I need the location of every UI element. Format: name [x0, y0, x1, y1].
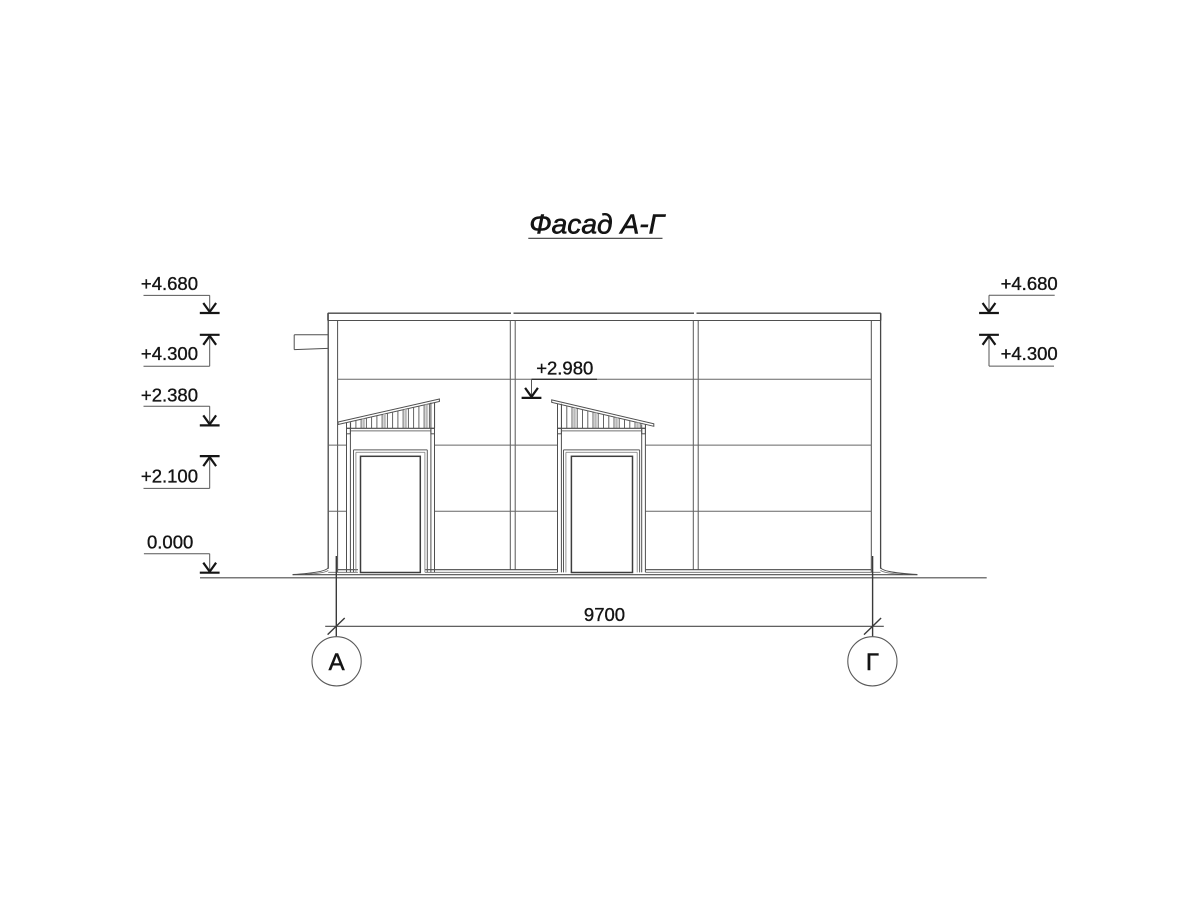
svg-text:+4.680: +4.680 [1001, 273, 1058, 294]
svg-text:+4.680: +4.680 [141, 273, 198, 294]
svg-text:+2.380: +2.380 [141, 384, 198, 405]
svg-text:+2.980: +2.980 [536, 357, 593, 378]
svg-text:+2.100: +2.100 [141, 466, 198, 487]
svg-text:9700: 9700 [584, 604, 625, 625]
svg-text:А: А [329, 649, 345, 676]
svg-text:Фасад А-Г: Фасад А-Г [529, 208, 666, 240]
svg-text:Г: Г [866, 649, 879, 676]
svg-text:+4.300: +4.300 [141, 343, 198, 364]
svg-text:+4.300: +4.300 [1001, 343, 1058, 364]
svg-text:0.000: 0.000 [147, 531, 193, 552]
